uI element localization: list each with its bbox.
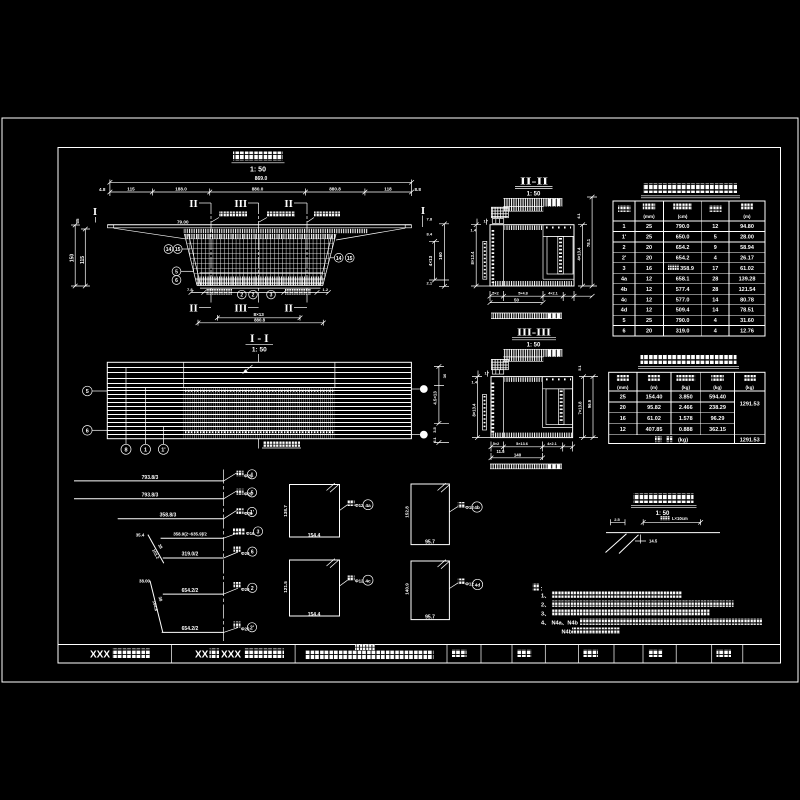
svg-text:5: 5 bbox=[251, 491, 254, 497]
svg-text:577.0: 577.0 bbox=[676, 297, 690, 303]
svg-text:5×2: 5×2 bbox=[493, 442, 499, 446]
svg-text:28: 28 bbox=[712, 287, 718, 293]
svg-text:4c: 4c bbox=[365, 578, 371, 584]
svg-text:1291.53: 1291.53 bbox=[740, 402, 760, 408]
svg-text:35.4: 35.4 bbox=[136, 533, 145, 538]
svg-text:(mm): (mm) bbox=[643, 214, 655, 219]
svg-text:115: 115 bbox=[127, 187, 135, 192]
svg-text:(kg): (kg) bbox=[713, 385, 722, 390]
svg-text:154.4: 154.4 bbox=[308, 612, 321, 618]
svg-text:20: 20 bbox=[646, 329, 652, 335]
svg-text:790.0: 790.0 bbox=[676, 318, 690, 324]
svg-text:8×13.4: 8×13.4 bbox=[471, 403, 476, 417]
svg-text:1: 50: 1: 50 bbox=[527, 191, 541, 197]
svg-text:118: 118 bbox=[384, 187, 392, 192]
svg-text:362.15: 362.15 bbox=[709, 427, 726, 433]
svg-text:31.60: 31.60 bbox=[740, 318, 754, 324]
svg-text:658.1: 658.1 bbox=[676, 276, 690, 282]
svg-text:793.8/3: 793.8/3 bbox=[142, 493, 159, 499]
svg-text:2.5: 2.5 bbox=[614, 517, 620, 522]
svg-text:35: 35 bbox=[75, 218, 80, 223]
svg-text:I - I: I - I bbox=[250, 333, 269, 345]
svg-text:1: 1 bbox=[622, 224, 625, 230]
svg-text:I: I bbox=[93, 206, 97, 218]
svg-text:II: II bbox=[189, 303, 198, 315]
svg-text:3.850: 3.850 bbox=[679, 394, 693, 400]
svg-text:5.1: 5.1 bbox=[432, 436, 437, 442]
svg-text:4.8: 4.8 bbox=[99, 187, 106, 192]
svg-text:2: 2 bbox=[622, 245, 625, 251]
svg-text:78.51: 78.51 bbox=[740, 308, 754, 314]
svg-text:20: 20 bbox=[646, 256, 652, 262]
svg-text:2': 2' bbox=[622, 256, 627, 262]
svg-text:38.00: 38.00 bbox=[139, 578, 151, 583]
svg-text:4.5×13: 4.5×13 bbox=[433, 391, 438, 405]
svg-text:3: 3 bbox=[622, 266, 625, 272]
svg-text:1.578: 1.578 bbox=[679, 416, 693, 422]
svg-text:17: 17 bbox=[485, 370, 490, 375]
svg-text:8.4: 8.4 bbox=[427, 232, 433, 237]
svg-text:(cm): (cm) bbox=[678, 214, 688, 219]
svg-text:Φ12: Φ12 bbox=[355, 503, 364, 508]
svg-text:5: 5 bbox=[86, 389, 89, 395]
svg-text:II: II bbox=[284, 198, 293, 210]
svg-text:XX: XX bbox=[195, 650, 209, 661]
svg-text:1': 1' bbox=[161, 448, 166, 454]
svg-text:14: 14 bbox=[166, 247, 172, 253]
svg-text:1、: 1、 bbox=[541, 594, 550, 600]
svg-text:25: 25 bbox=[646, 318, 652, 324]
svg-text:160: 160 bbox=[438, 252, 443, 260]
svg-text:(mm): (mm) bbox=[617, 385, 629, 390]
svg-text:15: 15 bbox=[175, 247, 181, 253]
svg-text:5.1: 5.1 bbox=[577, 364, 582, 370]
svg-text:5×13.6: 5×13.6 bbox=[516, 442, 528, 446]
svg-text:9: 9 bbox=[714, 245, 717, 251]
svg-text:2.1: 2.1 bbox=[427, 281, 433, 286]
svg-text:4b: 4b bbox=[474, 505, 480, 511]
svg-text:12: 12 bbox=[646, 308, 652, 314]
svg-text:96.29: 96.29 bbox=[711, 416, 725, 422]
svg-text:139.28: 139.28 bbox=[739, 276, 756, 282]
svg-text:4d: 4d bbox=[475, 583, 481, 589]
svg-text:II: II bbox=[189, 198, 198, 210]
svg-text:1: 50: 1: 50 bbox=[527, 343, 541, 349]
svg-text:0.888: 0.888 bbox=[679, 427, 693, 433]
svg-text:16: 16 bbox=[646, 266, 652, 272]
svg-text:4、: 4、 bbox=[541, 621, 550, 627]
svg-text:95.7: 95.7 bbox=[425, 540, 435, 546]
svg-text:7.8: 7.8 bbox=[427, 217, 433, 222]
svg-text:Φ20: Φ20 bbox=[241, 587, 250, 592]
svg-text:5×2: 5×2 bbox=[492, 292, 498, 296]
svg-text:Φ20: Φ20 bbox=[241, 551, 250, 556]
svg-text:154.4: 154.4 bbox=[308, 533, 321, 539]
svg-text:14.5: 14.5 bbox=[649, 539, 658, 544]
svg-text:14: 14 bbox=[712, 297, 719, 303]
svg-text:238.29: 238.29 bbox=[709, 405, 726, 411]
svg-text:25: 25 bbox=[646, 235, 652, 241]
svg-text:95.7: 95.7 bbox=[425, 615, 435, 621]
svg-text:138.7: 138.7 bbox=[283, 505, 288, 517]
svg-text:154.40: 154.40 bbox=[646, 394, 663, 400]
svg-text:5: 5 bbox=[622, 318, 625, 324]
svg-text:4×2.1: 4×2.1 bbox=[548, 292, 558, 296]
svg-text:61.02: 61.02 bbox=[740, 266, 754, 272]
svg-text:4c: 4c bbox=[621, 297, 627, 303]
svg-text:2: 2 bbox=[251, 586, 254, 592]
svg-text:8.8: 8.8 bbox=[415, 187, 422, 192]
svg-text:N4a、N4b: N4a、N4b bbox=[552, 621, 579, 627]
svg-text:1291.53: 1291.53 bbox=[740, 437, 760, 443]
svg-text:3: 3 bbox=[257, 530, 260, 536]
svg-text:4b: 4b bbox=[621, 287, 628, 293]
svg-text:358.9: 358.9 bbox=[680, 266, 694, 272]
svg-text:26.17: 26.17 bbox=[740, 256, 754, 262]
svg-text:16: 16 bbox=[620, 416, 626, 422]
svg-text:4×13: 4×13 bbox=[428, 255, 433, 266]
svg-text:II-II: II-II bbox=[520, 176, 548, 188]
svg-text:28.00: 28.00 bbox=[740, 235, 754, 241]
svg-text:Φ12: Φ12 bbox=[465, 505, 474, 510]
svg-text:7×13.8: 7×13.8 bbox=[577, 401, 582, 415]
svg-text:880.0: 880.0 bbox=[252, 187, 264, 192]
svg-text:15: 15 bbox=[347, 256, 353, 262]
svg-text:654.2/2: 654.2/2 bbox=[182, 626, 199, 632]
svg-text:96.9: 96.9 bbox=[587, 399, 592, 408]
svg-text:1: 1 bbox=[144, 448, 147, 454]
svg-text:793.8/3: 793.8/3 bbox=[142, 475, 159, 481]
svg-text:50: 50 bbox=[514, 297, 519, 302]
svg-text:4.1: 4.1 bbox=[576, 212, 581, 218]
svg-text:6: 6 bbox=[622, 329, 625, 335]
svg-text:121.54: 121.54 bbox=[739, 287, 757, 293]
svg-text:17: 17 bbox=[484, 218, 489, 223]
svg-text:6: 6 bbox=[251, 550, 254, 556]
svg-text:2: 2 bbox=[252, 293, 255, 299]
svg-text:94.80: 94.80 bbox=[740, 224, 754, 230]
svg-text:650.0: 650.0 bbox=[676, 235, 690, 241]
svg-text:121.5: 121.5 bbox=[283, 581, 288, 593]
svg-text:4a: 4a bbox=[365, 503, 371, 509]
svg-text:XXX: XXX bbox=[221, 650, 241, 661]
svg-text:8×13: 8×13 bbox=[254, 312, 265, 317]
svg-text:1: 50: 1: 50 bbox=[656, 511, 670, 517]
svg-text:319.0/2: 319.0/2 bbox=[182, 552, 199, 558]
svg-text:25: 25 bbox=[646, 224, 652, 230]
svg-text:(m): (m) bbox=[650, 385, 658, 390]
svg-text:12: 12 bbox=[646, 297, 652, 303]
svg-text:880.8: 880.8 bbox=[254, 318, 266, 323]
svg-text:5: 5 bbox=[714, 235, 717, 241]
svg-text:2: 2 bbox=[240, 293, 243, 299]
svg-text:140: 140 bbox=[514, 453, 522, 458]
svg-text:577.4: 577.4 bbox=[676, 287, 691, 293]
svg-text:12: 12 bbox=[620, 427, 626, 433]
svg-text:1': 1' bbox=[250, 510, 254, 516]
svg-text:80.78: 80.78 bbox=[740, 297, 754, 303]
svg-text:4a: 4a bbox=[621, 276, 628, 282]
svg-text:3、: 3、 bbox=[541, 612, 550, 618]
svg-text:115: 115 bbox=[80, 256, 86, 264]
svg-text:14: 14 bbox=[336, 256, 342, 262]
svg-text:358.9(2~635.9)/2: 358.9(2~635.9)/2 bbox=[173, 532, 207, 537]
svg-text:61.02: 61.02 bbox=[647, 416, 661, 422]
svg-text:III: III bbox=[234, 303, 247, 315]
svg-text:2.466: 2.466 bbox=[679, 405, 693, 411]
svg-text:III-III: III-III bbox=[517, 327, 551, 339]
svg-text:L×10cm: L×10cm bbox=[672, 516, 688, 521]
svg-text:869.0: 869.0 bbox=[255, 176, 268, 182]
svg-text:(kg): (kg) bbox=[682, 385, 691, 390]
svg-text:58.94: 58.94 bbox=[740, 245, 755, 251]
svg-text:594.40: 594.40 bbox=[709, 394, 726, 400]
svg-text:4d: 4d bbox=[621, 308, 627, 314]
svg-text:1.2: 1.2 bbox=[323, 287, 329, 292]
svg-text:28: 28 bbox=[712, 276, 718, 282]
svg-text:14: 14 bbox=[712, 308, 719, 314]
svg-text:654.2: 654.2 bbox=[676, 256, 690, 262]
svg-text:12: 12 bbox=[646, 276, 652, 282]
svg-text:188.0: 188.0 bbox=[175, 187, 187, 192]
svg-text:4×2.1: 4×2.1 bbox=[547, 442, 557, 446]
svg-text:(kg): (kg) bbox=[678, 437, 688, 443]
svg-text:358.8/3: 358.8/3 bbox=[160, 513, 177, 519]
svg-text:N4b: N4b bbox=[562, 630, 573, 636]
svg-text:79.00: 79.00 bbox=[177, 220, 189, 225]
svg-text:I: I bbox=[421, 205, 425, 217]
svg-text:20: 20 bbox=[620, 405, 626, 411]
svg-text:25: 25 bbox=[620, 394, 626, 400]
svg-text:5: 5 bbox=[175, 269, 178, 275]
svg-text:150: 150 bbox=[70, 254, 76, 263]
svg-text:8: 8 bbox=[124, 448, 127, 454]
svg-text:654.2: 654.2 bbox=[676, 245, 690, 251]
svg-text:1: 1 bbox=[251, 472, 254, 478]
svg-text:(m): (m) bbox=[743, 214, 751, 219]
svg-text:7.8: 7.8 bbox=[187, 287, 193, 292]
svg-text:319.0: 319.0 bbox=[676, 329, 690, 335]
svg-text:2': 2' bbox=[250, 625, 254, 631]
svg-text:78.1: 78.1 bbox=[586, 238, 591, 247]
svg-text:95.82: 95.82 bbox=[647, 405, 661, 411]
svg-text:407.85: 407.85 bbox=[646, 427, 663, 433]
svg-text:XXX: XXX bbox=[90, 650, 110, 661]
svg-text:152.8: 152.8 bbox=[404, 506, 409, 518]
svg-text::: : bbox=[541, 587, 543, 593]
svg-text:1: 50: 1: 50 bbox=[250, 167, 266, 174]
svg-text:II: II bbox=[284, 303, 293, 315]
svg-text:3: 3 bbox=[270, 293, 273, 299]
svg-text:1.4: 1.4 bbox=[472, 380, 478, 385]
svg-text:12.76: 12.76 bbox=[740, 329, 754, 335]
svg-text:509.4: 509.4 bbox=[676, 308, 691, 314]
svg-text:30: 30 bbox=[442, 373, 447, 378]
svg-text:III: III bbox=[234, 198, 247, 210]
svg-text:2、: 2、 bbox=[541, 603, 550, 609]
svg-text:12: 12 bbox=[712, 224, 718, 230]
svg-text:Φ12: Φ12 bbox=[355, 579, 364, 584]
svg-text:880.8: 880.8 bbox=[329, 187, 341, 192]
svg-text:20: 20 bbox=[646, 245, 652, 251]
svg-text:790.0: 790.0 bbox=[676, 224, 690, 230]
svg-text:3.5: 3.5 bbox=[432, 426, 437, 432]
svg-text:654.2/2: 654.2/2 bbox=[182, 588, 199, 594]
svg-text:6: 6 bbox=[86, 428, 89, 434]
svg-text:8×13.4: 8×13.4 bbox=[470, 251, 475, 265]
svg-text:4×13.4: 4×13.4 bbox=[576, 247, 581, 261]
svg-text:1: 50: 1: 50 bbox=[252, 347, 267, 354]
svg-text:17: 17 bbox=[712, 266, 718, 272]
svg-text:5×4.8: 5×4.8 bbox=[518, 292, 528, 296]
svg-text:1': 1' bbox=[622, 235, 627, 241]
svg-text:11.5: 11.5 bbox=[497, 449, 506, 454]
svg-text:6: 6 bbox=[175, 278, 178, 284]
svg-text:140.9: 140.9 bbox=[404, 583, 409, 595]
svg-text:1.4: 1.4 bbox=[471, 228, 477, 233]
svg-text:(kg): (kg) bbox=[745, 385, 754, 390]
svg-text:12: 12 bbox=[646, 287, 652, 293]
